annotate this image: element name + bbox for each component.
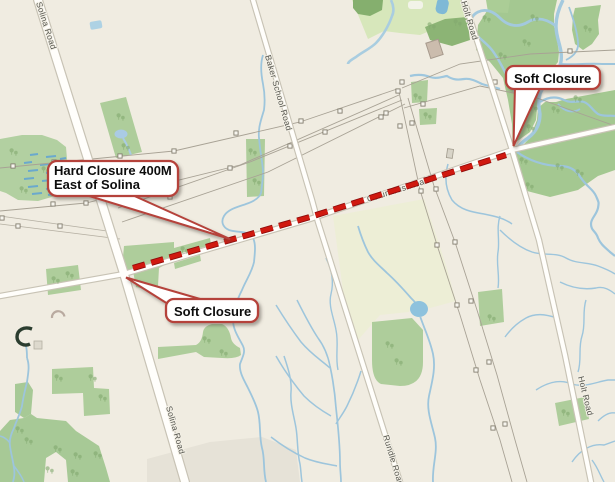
- svg-text:Soft Closure: Soft Closure: [174, 304, 251, 319]
- svg-text:East of Solina: East of Solina: [54, 177, 141, 192]
- svg-text:Soft Closure: Soft Closure: [514, 71, 591, 86]
- svg-text:Hard Closure 400M: Hard Closure 400M: [54, 163, 172, 178]
